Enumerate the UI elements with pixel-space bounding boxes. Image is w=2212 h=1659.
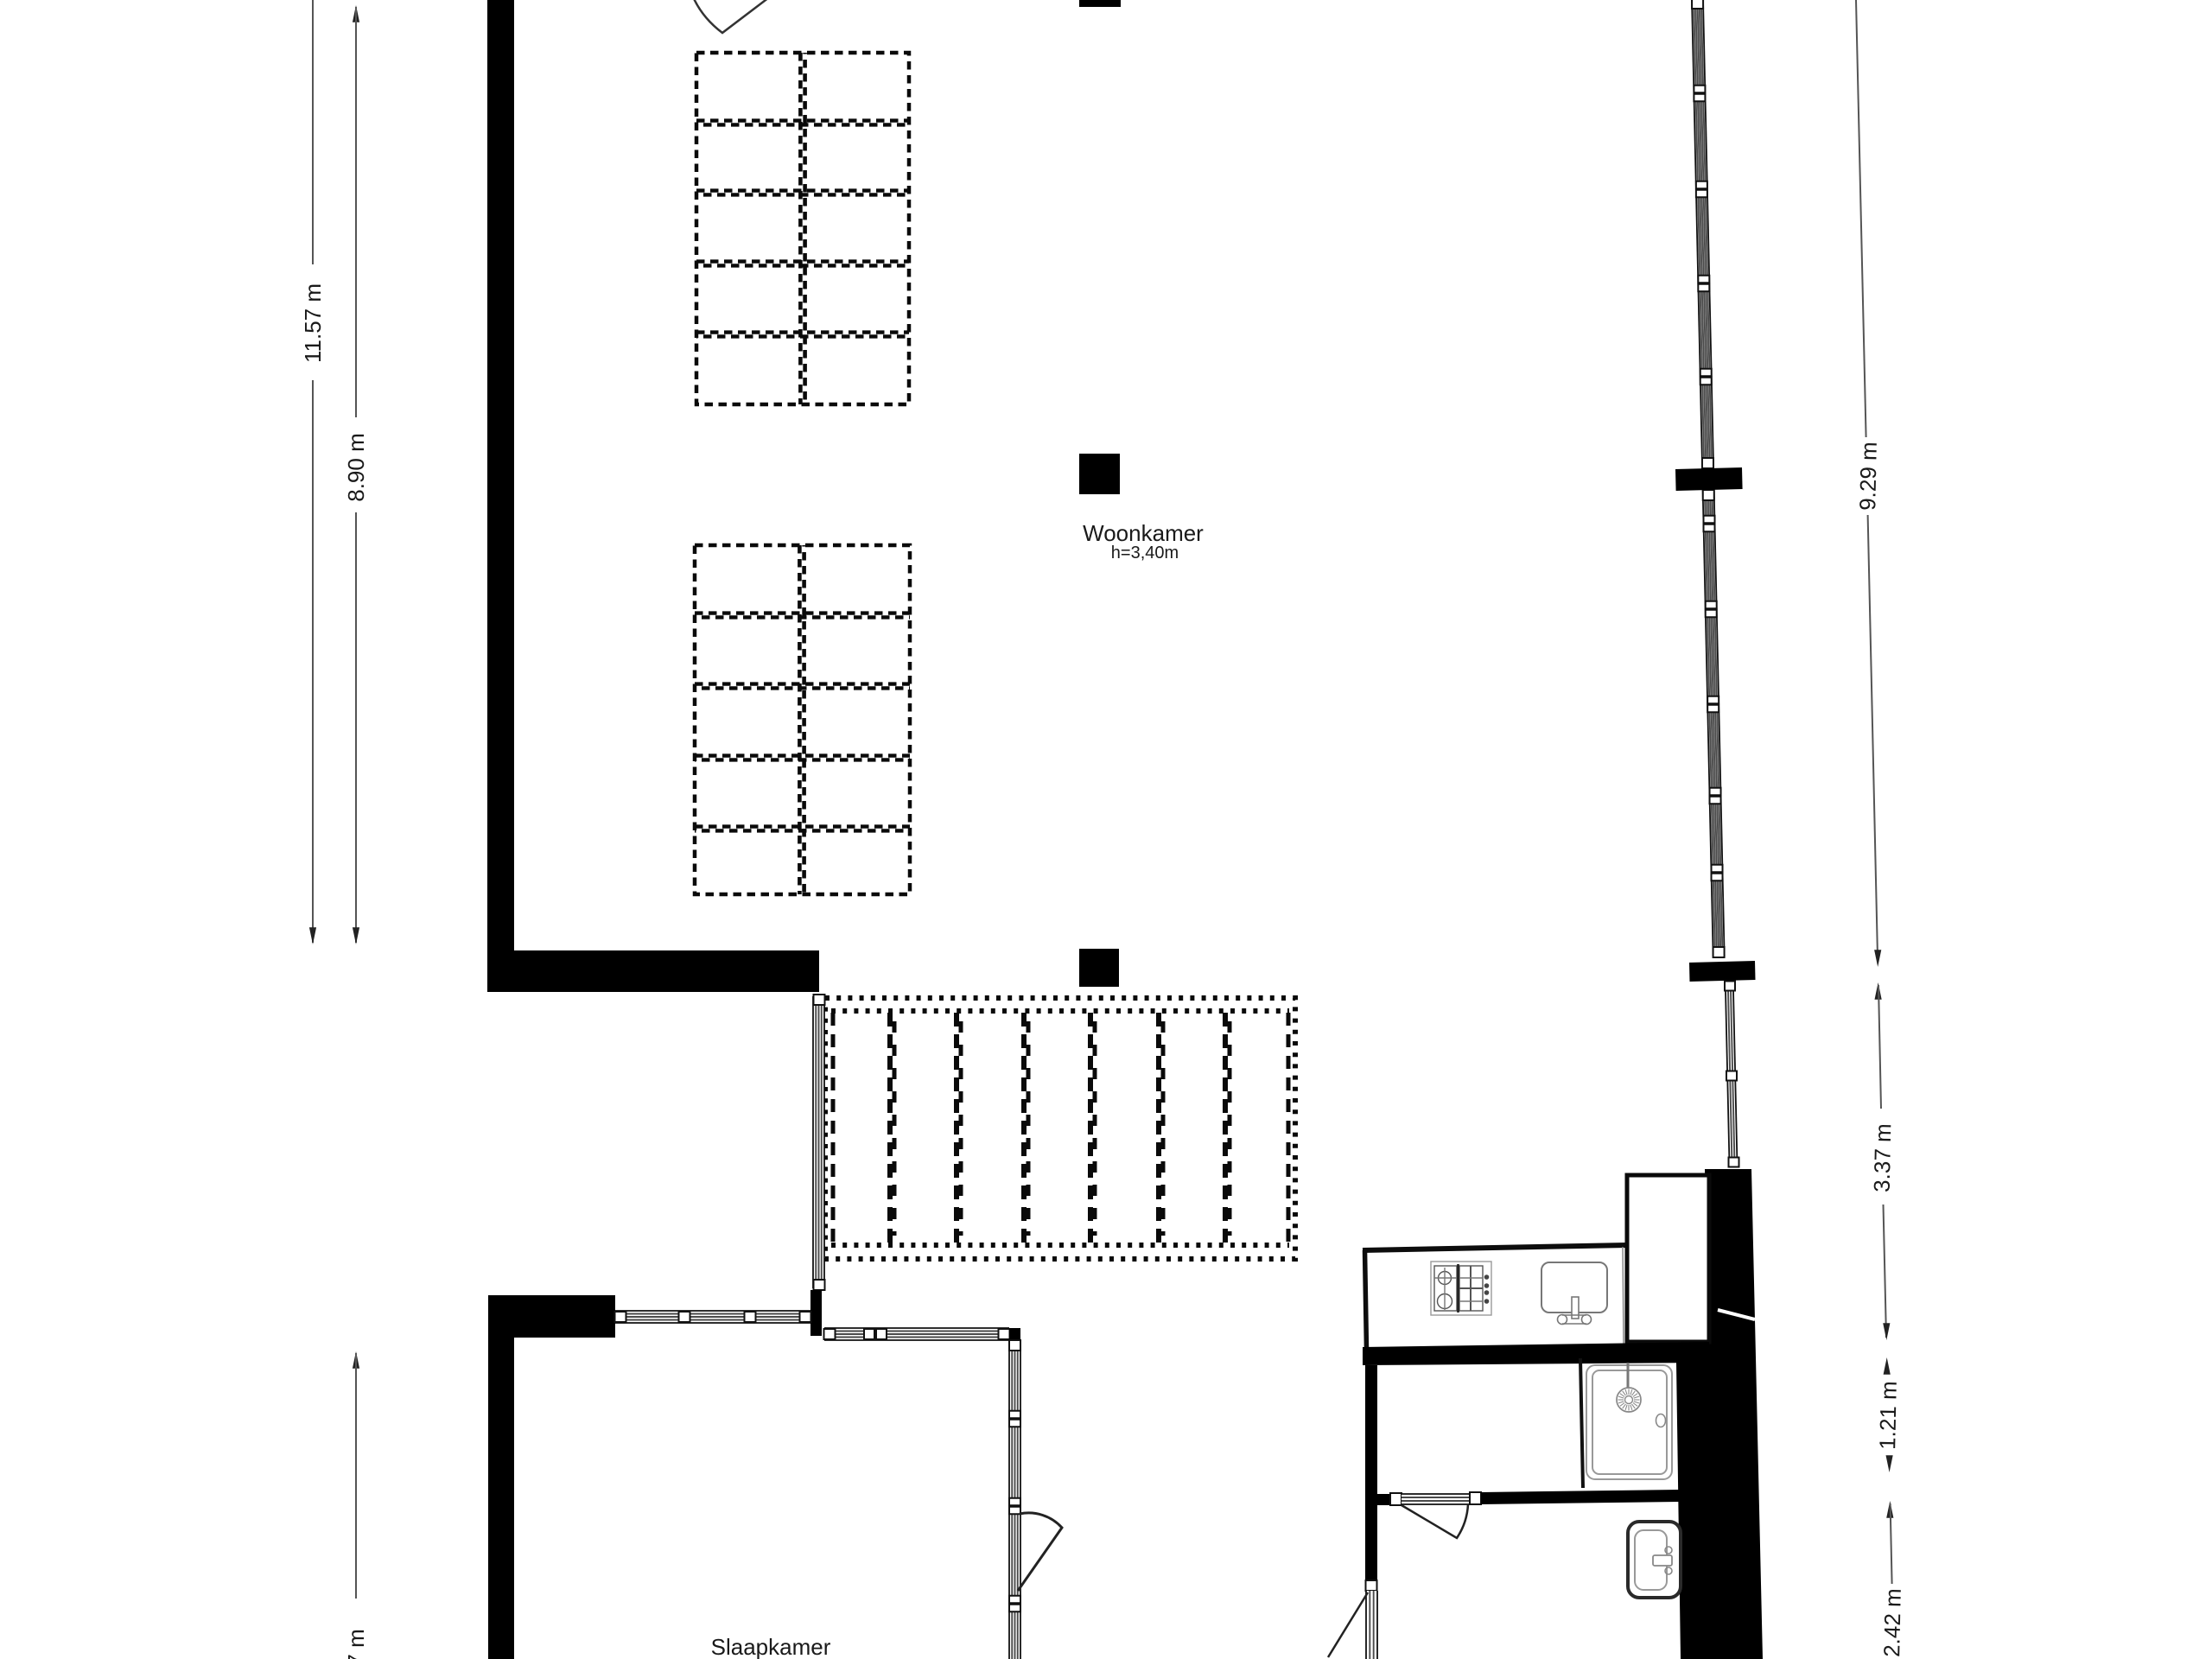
svg-text:3.37 m: 3.37 m [1869,1123,1897,1192]
svg-text:8.90 m: 8.90 m [343,433,369,502]
svg-text:Slaapkamer: Slaapkamer [711,1634,831,1659]
svg-text:1.21 m: 1.21 m [1874,1381,1902,1450]
svg-text:9.29 m: 9.29 m [1854,442,1882,511]
svg-text:h=3,40m: h=3,40m [1111,543,1179,563]
svg-text:11.57 m: 11.57 m [300,283,326,363]
svg-text:5.57 m: 5.57 m [343,1629,369,1659]
svg-text:2.42 m: 2.42 m [1878,1588,1906,1657]
svg-text:Woonkamer: Woonkamer [1083,520,1204,546]
